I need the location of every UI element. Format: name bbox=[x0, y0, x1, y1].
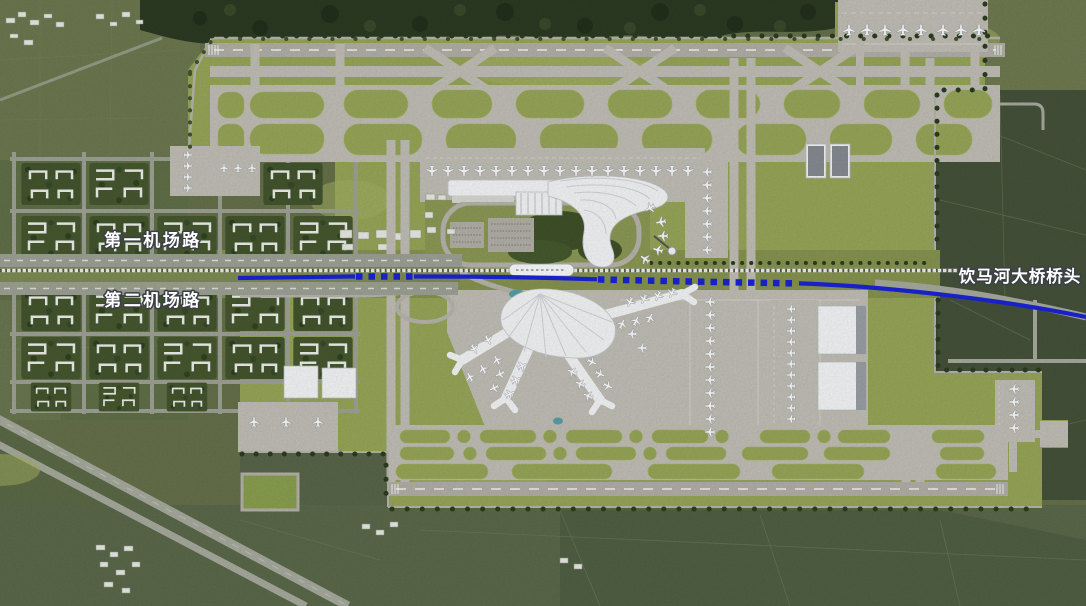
label-first-airport-road: 第一机场路 bbox=[104, 230, 202, 250]
label-second-airport-road: 第二机场路 bbox=[104, 290, 202, 310]
masterplan-svg: 第一机场路 第二机场路 饮马河大桥桥头 bbox=[0, 0, 1086, 606]
label-yinma-river-bridge-head: 饮马河大桥桥头 bbox=[958, 266, 1082, 286]
airport-masterplan-rendering[interactable]: 第一机场路 第二机场路 饮马河大桥桥头 bbox=[0, 0, 1086, 606]
